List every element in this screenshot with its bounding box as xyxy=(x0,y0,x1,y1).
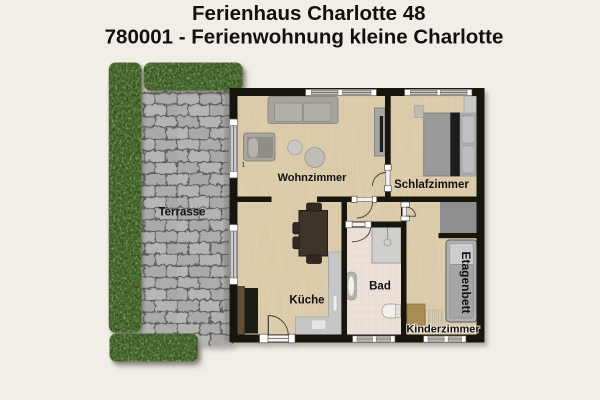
svg-text:1: 1 xyxy=(242,162,246,169)
svg-text:Kinderzimmer: Kinderzimmer xyxy=(406,324,480,336)
svg-text:Küche: Küche xyxy=(289,295,324,307)
svg-text:Wohnzimmer: Wohnzimmer xyxy=(278,172,348,184)
svg-text:Etagenbett: Etagenbett xyxy=(459,251,473,313)
svg-text:Terrasse: Terrasse xyxy=(158,207,205,219)
svg-text:Schlafzimmer: Schlafzimmer xyxy=(394,179,469,191)
svg-text:780001 - Ferienwohnung kleine: 780001 - Ferienwohnung kleine Charlotte xyxy=(105,26,504,49)
svg-text:Ferienhaus Charlotte 48: Ferienhaus Charlotte 48 xyxy=(192,2,426,25)
svg-text:Bad: Bad xyxy=(369,281,391,293)
